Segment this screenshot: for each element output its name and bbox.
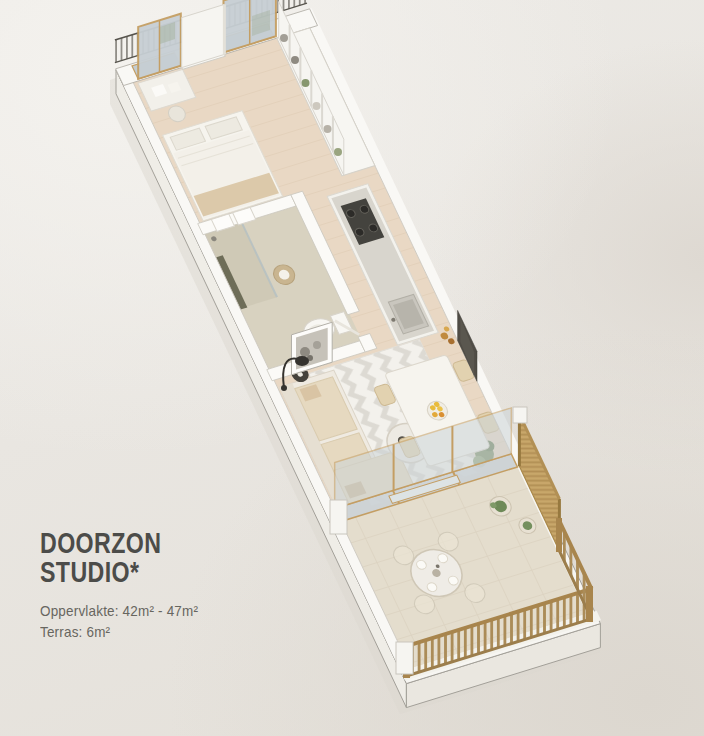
railing-post: [586, 586, 593, 622]
shelf-item: [334, 148, 342, 156]
shelf-item: [291, 56, 299, 64]
area-label: Oppervlakte: 42m² - 47m²: [40, 601, 198, 622]
page-title-line1: DOORZON: [40, 529, 176, 558]
shelf-item: [302, 79, 310, 87]
page-title-line2: STUDIO*: [40, 558, 176, 587]
shelf-item: [313, 102, 321, 110]
shelf-item: [280, 34, 288, 42]
artwork-detail: [313, 341, 321, 349]
detail-block: Oppervlakte: 42m² - 47m² Terras: 6m²: [40, 601, 210, 643]
terrace-label: Terras: 6m²: [40, 622, 198, 643]
caption-block: DOORZON STUDIO* Oppervlakte: 42m² - 47m²…: [40, 529, 210, 643]
brochure-page: DOORZON STUDIO* Oppervlakte: 42m² - 47m²…: [0, 0, 704, 736]
railing-post: [556, 518, 562, 552]
shelf-item: [324, 125, 332, 133]
